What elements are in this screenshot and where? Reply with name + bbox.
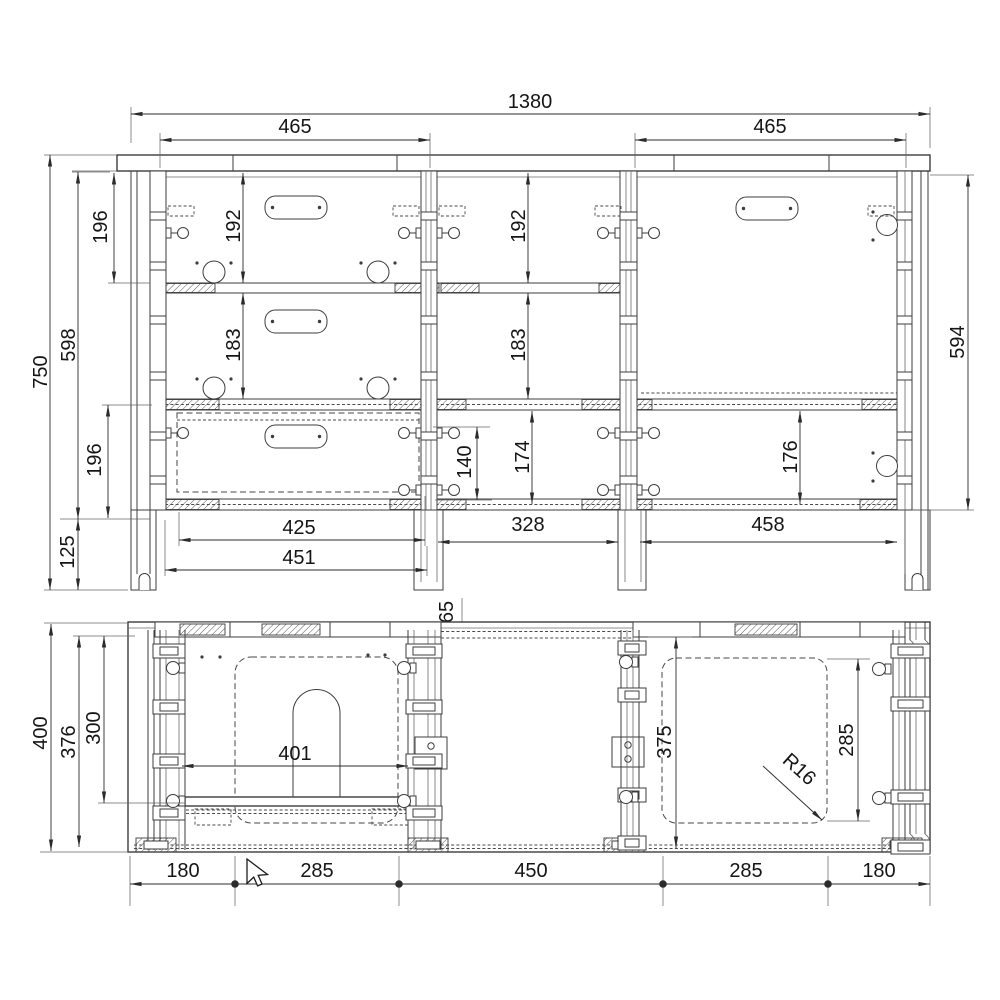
dim-drawer-depth: 300 bbox=[83, 711, 105, 744]
pin-collar bbox=[166, 428, 171, 438]
dim-bay2-upper: 192 bbox=[508, 209, 530, 242]
rail-bracket-inner bbox=[160, 703, 178, 711]
panel-clip bbox=[897, 316, 912, 324]
panel-clip bbox=[620, 262, 637, 270]
dim-overall-height: 750 bbox=[30, 355, 52, 388]
pin-collar bbox=[166, 228, 171, 238]
pin-head-icon bbox=[178, 428, 189, 439]
rail-bracket-inner bbox=[625, 839, 639, 847]
shelf-band-lower bbox=[155, 393, 912, 410]
pin-head-icon bbox=[873, 792, 886, 805]
slide-bracket bbox=[393, 206, 419, 216]
rail-bracket-inner bbox=[413, 703, 435, 711]
cad-drawing-page: 1380 465 465 750 598 196 196 125 594 192… bbox=[0, 0, 1000, 1000]
pin-head-icon bbox=[598, 485, 609, 496]
pin-head-icon bbox=[167, 662, 180, 675]
pin-head-icon bbox=[449, 228, 460, 239]
dim-door-depth: 375 bbox=[654, 725, 676, 758]
front-elevation-view bbox=[44, 155, 930, 590]
rail-bracket-inner bbox=[898, 700, 923, 708]
dim-base-outer-width: 451 bbox=[282, 547, 315, 569]
pin-head-icon bbox=[598, 228, 609, 239]
dim-chain-3: 285 bbox=[729, 860, 762, 882]
rail-bracket-inner bbox=[625, 691, 639, 699]
pin-collar bbox=[416, 428, 421, 438]
shelf-band-upper bbox=[155, 283, 637, 293]
rail-bracket-inner bbox=[160, 809, 178, 817]
panel-clip bbox=[897, 372, 912, 380]
plan-outline bbox=[128, 622, 930, 852]
back-rail-right bbox=[633, 622, 905, 637]
rail-bracket-inner bbox=[898, 793, 923, 801]
leg-notch bbox=[139, 574, 150, 591]
pin-collar bbox=[416, 485, 421, 495]
pin-collar bbox=[615, 428, 620, 438]
dim-left-lower-offset: 196 bbox=[84, 443, 106, 476]
pin-head-icon bbox=[399, 428, 410, 439]
panel-clip bbox=[150, 432, 166, 440]
dim-bay1-middle: 183 bbox=[223, 328, 245, 361]
dim-back-rail-offset: 65 bbox=[436, 601, 458, 623]
dim-door-cutout-depth: 285 bbox=[836, 723, 858, 756]
dim-base-inner-width: 425 bbox=[282, 517, 315, 539]
dim-plinth-height: 125 bbox=[57, 535, 79, 568]
pin-head-icon bbox=[399, 228, 410, 239]
pin-head-icon bbox=[178, 228, 189, 239]
dim-left-opening: 465 bbox=[278, 116, 311, 138]
rail-bracket-inner bbox=[160, 757, 178, 765]
panel-clip bbox=[150, 212, 166, 220]
dim-base-middle-width: 328 bbox=[511, 514, 544, 536]
dim-cutout-width: 401 bbox=[278, 743, 311, 765]
pin-head-icon bbox=[167, 795, 180, 808]
pin-head-icon bbox=[620, 791, 633, 804]
pin-head-icon bbox=[649, 428, 660, 439]
pin-head-icon bbox=[399, 485, 410, 496]
mouse-cursor-icon bbox=[247, 859, 268, 886]
dim-right-side-height: 594 bbox=[947, 325, 969, 358]
pin-head-icon bbox=[620, 656, 633, 669]
back-rail-left bbox=[155, 622, 441, 637]
pin-head-icon bbox=[398, 795, 411, 808]
dim-left-upper-offset: 196 bbox=[90, 210, 112, 243]
panel-clip bbox=[421, 372, 437, 380]
panel-clip bbox=[897, 476, 912, 484]
bottom-panel-band bbox=[155, 499, 912, 510]
dim-overall-width: 1380 bbox=[508, 91, 553, 113]
pin-head-icon bbox=[398, 662, 411, 675]
dim-chain-4: 180 bbox=[862, 860, 895, 882]
panel-clip bbox=[150, 316, 166, 324]
dim-bay2-middle: 183 bbox=[508, 328, 530, 361]
pin-collar bbox=[437, 428, 442, 438]
plan-view bbox=[40, 622, 930, 854]
panel-clip bbox=[421, 476, 437, 484]
rail-bracket-inner bbox=[160, 647, 178, 655]
panel-clip bbox=[897, 432, 912, 440]
panel-clip bbox=[620, 432, 637, 440]
dim-chain-0: 180 bbox=[166, 860, 199, 882]
panel-clip bbox=[897, 212, 912, 220]
rail-bracket-inner bbox=[413, 647, 435, 655]
pin-collar bbox=[437, 485, 442, 495]
panel-clip bbox=[620, 372, 637, 380]
dim-bay1-upper: 192 bbox=[223, 209, 245, 242]
panel-clip bbox=[620, 316, 637, 324]
pin-collar bbox=[637, 228, 642, 238]
pin-head-icon bbox=[449, 485, 460, 496]
pin-collar bbox=[615, 485, 620, 495]
slide-bracket bbox=[439, 206, 465, 216]
dim-left-side-height: 598 bbox=[58, 328, 80, 361]
rail-bracket-inner bbox=[898, 843, 923, 851]
mid-right-leg bbox=[618, 510, 646, 590]
dim-right-opening: 465 bbox=[753, 116, 786, 138]
dim-bay2-lower: 174 bbox=[512, 440, 534, 473]
slide-bracket bbox=[168, 206, 194, 216]
panel-clip bbox=[421, 212, 437, 220]
panel-clip bbox=[150, 262, 166, 270]
panel-clip bbox=[897, 262, 912, 270]
countertop bbox=[117, 155, 930, 171]
leg-notch bbox=[912, 574, 923, 591]
pin-head-icon bbox=[649, 485, 660, 496]
panel-clip bbox=[421, 316, 437, 324]
rail-bracket-inner bbox=[413, 809, 435, 817]
drawing-canvas: 1380 465 465 750 598 196 196 125 594 192… bbox=[0, 0, 1000, 1000]
panel-clip bbox=[421, 262, 437, 270]
pin-collar bbox=[416, 228, 421, 238]
pin-collar bbox=[615, 228, 620, 238]
dim-bay3-lower: 176 bbox=[780, 440, 802, 473]
pin-collar bbox=[637, 428, 642, 438]
cam-locks bbox=[871, 210, 897, 482]
dim-base-right-width: 458 bbox=[751, 514, 784, 536]
dim-drawer-box-height: 140 bbox=[454, 445, 476, 478]
dim-chain-1: 285 bbox=[300, 860, 333, 882]
rail-bracket-inner bbox=[625, 644, 639, 652]
panel-clip bbox=[150, 372, 166, 380]
pin-collar bbox=[437, 228, 442, 238]
pin-head-icon bbox=[449, 428, 460, 439]
mid-left-leg bbox=[414, 510, 443, 590]
panel-clip bbox=[421, 432, 437, 440]
dim-overall-depth: 400 bbox=[30, 716, 52, 749]
pin-head-icon bbox=[873, 663, 886, 676]
rail-bracket-inner bbox=[413, 757, 435, 765]
front-dimensions: 1380 465 465 750 598 196 196 125 594 192… bbox=[30, 91, 974, 660]
panel-clip bbox=[620, 212, 637, 220]
pin-collar bbox=[637, 485, 642, 495]
pin-head-icon bbox=[598, 428, 609, 439]
slide-bracket bbox=[595, 206, 621, 216]
pin-head-icon bbox=[649, 228, 660, 239]
panel-clip bbox=[620, 476, 637, 484]
dim-inner-depth: 376 bbox=[58, 725, 80, 758]
dim-chain-2: 450 bbox=[514, 860, 547, 882]
panel-clip bbox=[150, 476, 166, 484]
rail-bracket-inner bbox=[898, 647, 923, 655]
